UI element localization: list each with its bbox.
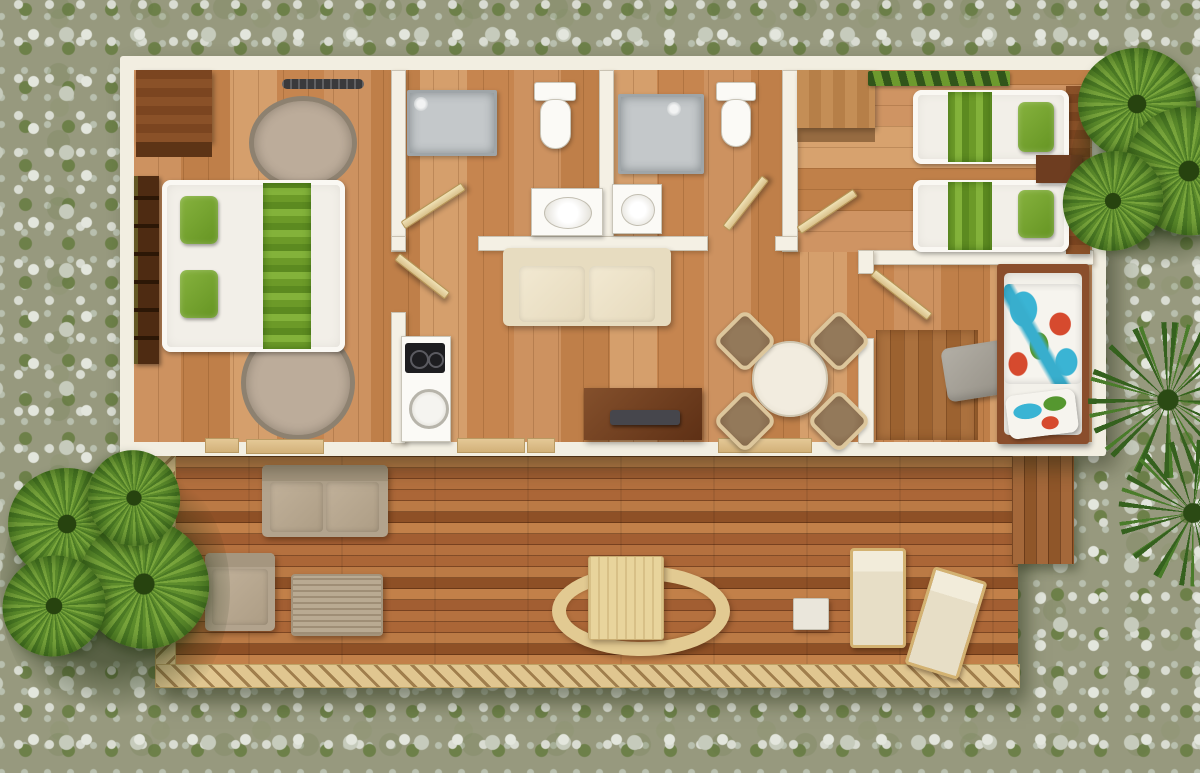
outdoor-sofa-back — [262, 465, 388, 481]
round-rug-top — [249, 96, 357, 190]
coffee-table — [291, 574, 383, 636]
wall-living-kids-a — [858, 250, 874, 274]
master-wardrobe-shadow — [136, 142, 212, 157]
floor-plan-scene — [0, 0, 1200, 773]
outdoor-sofa-cushion — [326, 482, 379, 532]
kids-bed-frame — [997, 264, 1089, 444]
burner — [428, 352, 444, 368]
sofa-cushion — [519, 266, 585, 322]
tv — [610, 410, 680, 425]
hall-wardrobe-shadow — [797, 128, 875, 142]
shower-1 — [407, 90, 497, 156]
door-sill — [246, 439, 324, 454]
sun-lounger-1 — [850, 548, 906, 648]
kitchen-sink — [409, 389, 449, 429]
shower-2-drain — [667, 102, 681, 116]
master-wardrobe — [136, 70, 212, 142]
tv-stand — [584, 388, 702, 440]
shower-2 — [618, 94, 704, 174]
toilet-2-bowl — [721, 99, 751, 147]
door-sill — [527, 438, 555, 453]
hall-wardrobe — [797, 70, 875, 128]
kitchen-unit — [401, 336, 451, 442]
toilet-1-bowl — [540, 99, 571, 149]
wall-corridor-2 — [775, 236, 798, 251]
twin-runner-rug — [868, 71, 1010, 86]
sink-2-basin — [621, 194, 655, 226]
deck-dining-table — [588, 556, 664, 640]
deck-bottom-railing — [155, 664, 1020, 688]
sofa-cushion — [589, 266, 655, 322]
ceiling-vent — [282, 79, 364, 89]
twin-bed-a-runner — [948, 92, 992, 162]
shower-1-drain — [414, 97, 428, 111]
wall-stub — [391, 236, 406, 251]
master-green-pillow-2 — [180, 270, 218, 318]
master-bed-green-runner — [263, 183, 311, 349]
side-table — [793, 598, 829, 630]
twin-bed-b-runner — [948, 182, 992, 250]
burner — [410, 350, 429, 369]
sink-2 — [612, 184, 662, 234]
twin-bed-b-pillow — [1018, 190, 1054, 238]
master-bookshelf — [134, 176, 159, 364]
wall-bath2-hall — [782, 70, 798, 252]
tropical-pillow — [1005, 388, 1080, 440]
deck-side-step — [1012, 452, 1074, 564]
door-sill — [205, 438, 239, 453]
cooktop — [405, 343, 445, 373]
outdoor-sofa — [262, 465, 388, 537]
wall-twin-kids — [858, 250, 1094, 265]
living-sofa — [503, 248, 671, 326]
sink-1-basin — [544, 197, 592, 229]
master-green-pillow-1 — [180, 196, 218, 244]
door-sill — [457, 438, 525, 453]
twin-bed-a-pillow — [1018, 102, 1054, 152]
outdoor-sofa-cushion — [270, 482, 323, 532]
sink-1 — [531, 188, 603, 236]
tropical-blanket — [1004, 284, 1082, 384]
